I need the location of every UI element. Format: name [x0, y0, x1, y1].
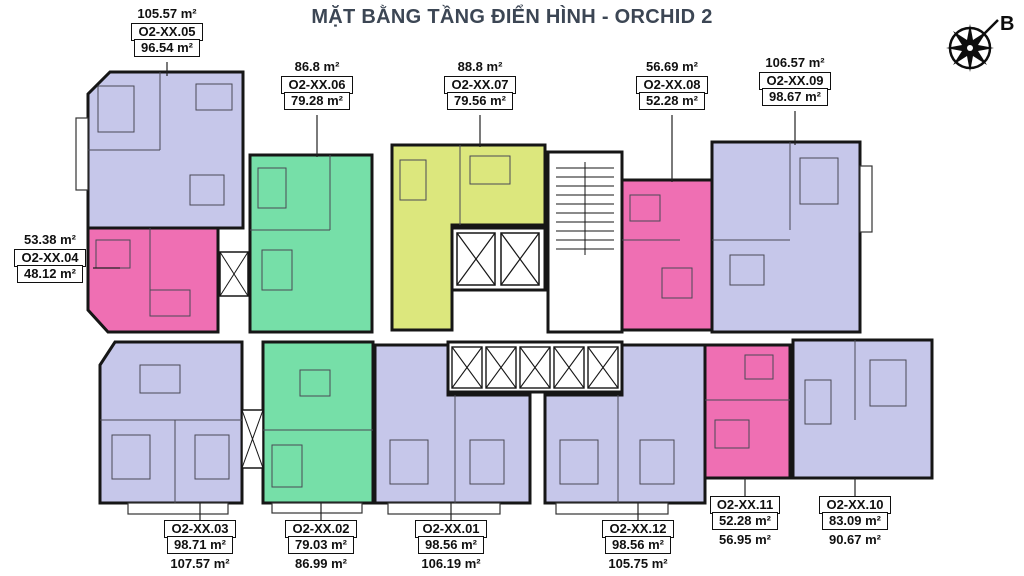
- outer-area-text: 86.8 m²: [295, 59, 340, 75]
- unit-label-o2-xx-08: 56.69 m² O2-XX.08 52.28 m²: [620, 59, 724, 110]
- outer-area-text: 90.67 m²: [829, 532, 881, 548]
- outer-area-text: 106.19 m²: [421, 556, 480, 572]
- unit-label-o2-xx-02: O2-XX.02 79.03 m² 86.99 m²: [269, 520, 373, 572]
- unit-area-box: 98.71 m²: [167, 536, 233, 554]
- unit-label-o2-xx-01: O2-XX.01 98.56 m² 106.19 m²: [399, 520, 503, 572]
- outer-area-text: 107.57 m²: [170, 556, 229, 572]
- unit-area-box: 83.09 m²: [822, 512, 888, 530]
- unit-name-box: O2-XX.06: [281, 76, 352, 94]
- unit-o2-xx-02-region: [263, 342, 373, 503]
- unit-o2-xx-08-region: [622, 180, 712, 330]
- outer-area-text: 86.99 m²: [295, 556, 347, 572]
- outer-area-text: 106.57 m²: [765, 55, 824, 71]
- unit-area-box: 52.28 m²: [639, 92, 705, 110]
- outer-area-text: 105.75 m²: [608, 556, 667, 572]
- unit-label-o2-xx-04: 53.38 m² O2-XX.04 48.12 m²: [0, 232, 102, 283]
- elevator-pair: [452, 228, 545, 290]
- unit-name-box: O2-XX.03: [164, 520, 235, 538]
- unit-label-o2-xx-09: 106.57 m² O2-XX.09 98.67 m²: [743, 55, 847, 106]
- outer-area-text: 105.57 m²: [137, 6, 196, 22]
- unit-o2-xx-06-region: [250, 155, 372, 332]
- unit-o2-xx-10-region: [793, 340, 932, 478]
- unit-label-o2-xx-12: O2-XX.12 98.56 m² 105.75 m²: [586, 520, 690, 572]
- unit-label-o2-xx-10: O2-XX.10 83.09 m² 90.67 m²: [803, 496, 907, 548]
- unit-label-o2-xx-03: O2-XX.03 98.71 m² 107.57 m²: [148, 520, 252, 572]
- unit-name-box: O2-XX.10: [819, 496, 890, 514]
- unit-label-o2-xx-05: 105.57 m² O2-XX.05 96.54 m²: [115, 6, 219, 57]
- floor-plan-page: MẶT BẰNG TẦNG ĐIỂN HÌNH - ORCHID 2: [0, 0, 1024, 576]
- unit-label-o2-xx-06: 86.8 m² O2-XX.06 79.28 m²: [265, 59, 369, 110]
- unit-area-box: 79.03 m²: [288, 536, 354, 554]
- unit-name-box: O2-XX.08: [636, 76, 707, 94]
- compass-hub: [967, 45, 973, 51]
- unit-label-o2-xx-11: O2-XX.11 52.28 m² 56.95 m²: [693, 496, 797, 548]
- unit-name-box: O2-XX.02: [285, 520, 356, 538]
- unit-name-box: O2-XX.04: [14, 249, 85, 267]
- unit-area-box: 48.12 m²: [17, 265, 83, 283]
- unit-name-box: O2-XX.12: [602, 520, 673, 538]
- unit-label-o2-xx-07: 88.8 m² O2-XX.07 79.56 m²: [428, 59, 532, 110]
- unit-name-box: O2-XX.11: [710, 496, 780, 514]
- unit-area-box: 98.56 m²: [418, 536, 484, 554]
- unit-area-box: 52.28 m²: [712, 512, 778, 530]
- stair-core: [548, 152, 622, 332]
- outer-area-text: 56.69 m²: [646, 59, 698, 75]
- outer-area-text: 56.95 m²: [719, 532, 771, 548]
- unit-area-box: 98.67 m²: [762, 88, 828, 106]
- unit-o2-xx-11-region: [705, 345, 790, 478]
- unit-name-box: O2-XX.07: [444, 76, 515, 94]
- unit-name-box: O2-XX.01: [415, 520, 486, 538]
- elevator-bank: [448, 342, 622, 392]
- outer-area-text: 53.38 m²: [24, 232, 76, 248]
- unit-name-box: O2-XX.09: [759, 72, 830, 90]
- unit-name-box: O2-XX.05: [131, 23, 202, 41]
- unit-area-box: 96.54 m²: [134, 39, 200, 57]
- unit-area-box: 98.56 m²: [605, 536, 671, 554]
- outer-area-text: 88.8 m²: [458, 59, 503, 75]
- unit-area-box: 79.56 m²: [447, 92, 513, 110]
- unit-area-box: 79.28 m²: [284, 92, 350, 110]
